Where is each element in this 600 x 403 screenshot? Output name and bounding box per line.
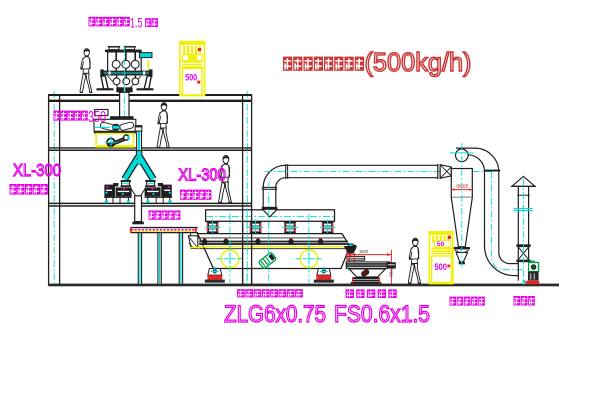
svg-text:FS0.6x1.5: FS0.6x1.5: [334, 301, 430, 328]
svg-text:XL-300: XL-300: [13, 160, 61, 180]
svg-text:ZLG6x0.75: ZLG6x0.75: [224, 301, 326, 328]
svg-text:50: 50: [437, 242, 445, 248]
svg-text:500: 500: [185, 72, 197, 83]
svg-text:760: 760: [389, 269, 394, 277]
svg-text:(500kg/h): (500kg/h): [365, 47, 472, 77]
svg-text:500: 500: [434, 262, 447, 273]
svg-text:XL-300: XL-300: [178, 164, 226, 184]
svg-text:1500: 1500: [359, 249, 368, 254]
svg-text:1.5: 1.5: [130, 16, 143, 31]
svg-text:350: 350: [88, 109, 106, 126]
